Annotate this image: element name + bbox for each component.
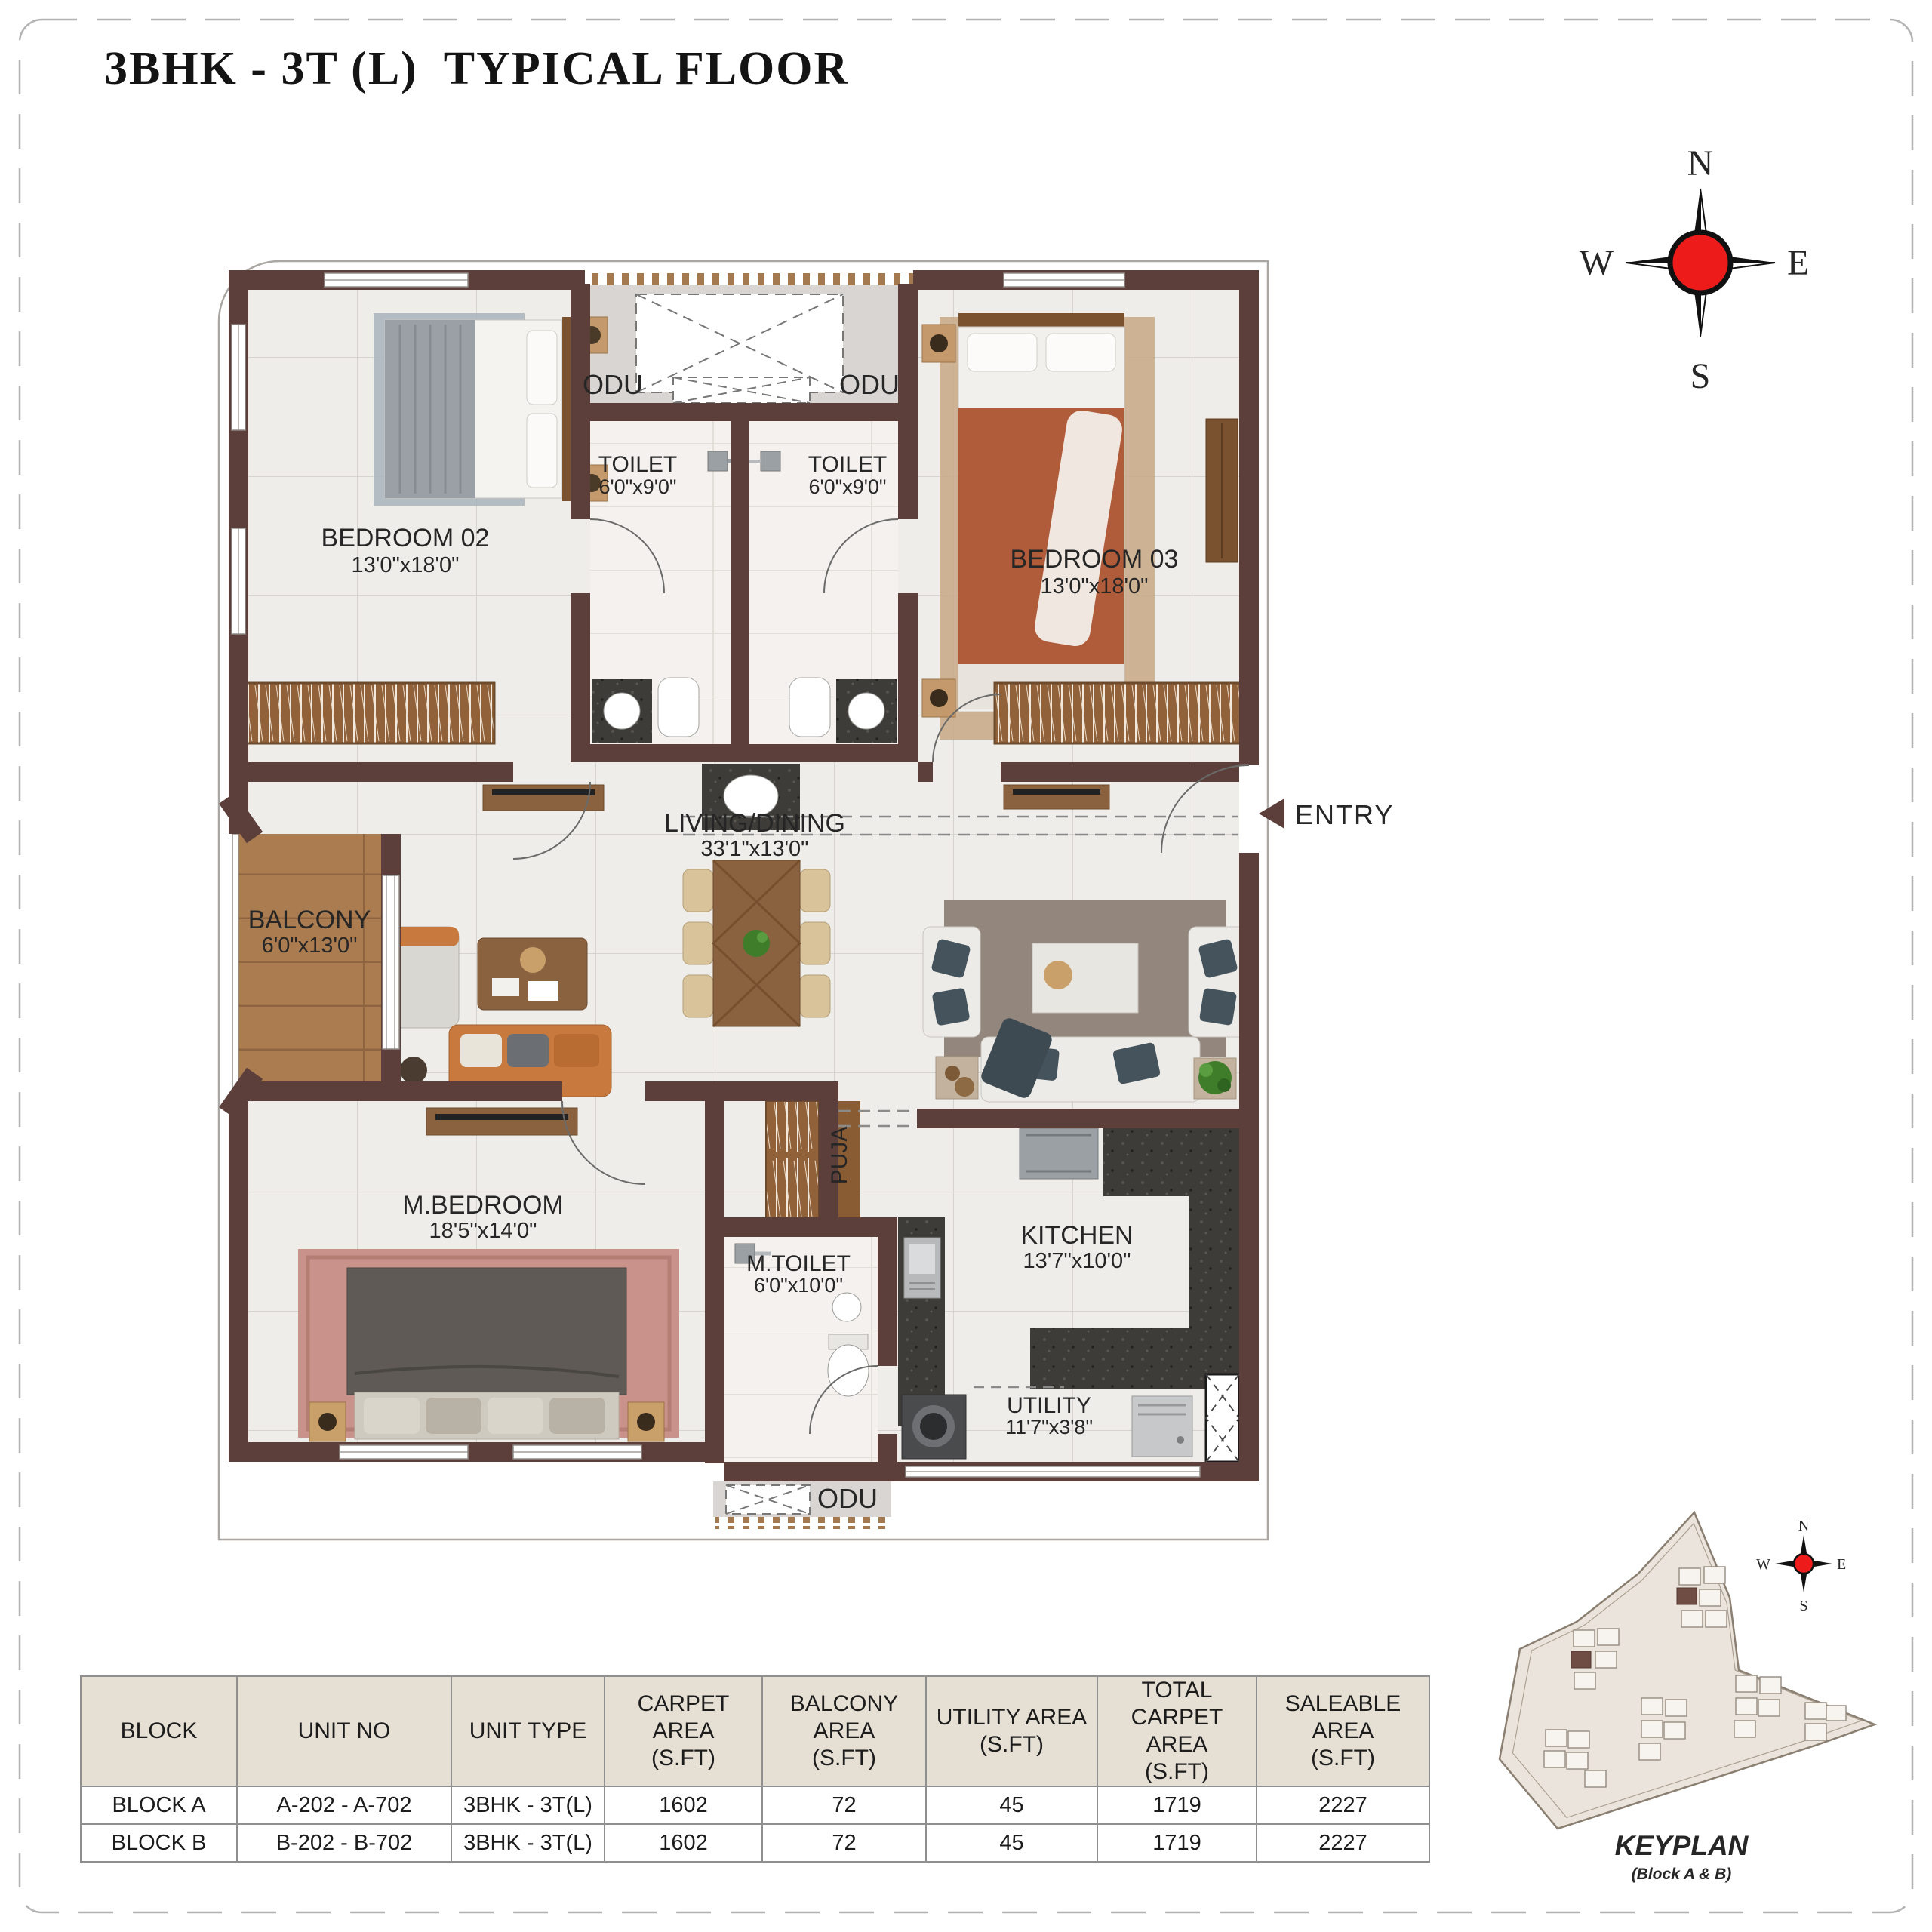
col-header-saleable-area: SALEABLE AREA (S.FT)	[1257, 1676, 1429, 1786]
odu-top-unit	[636, 294, 843, 403]
label-odu-right: ODU	[839, 369, 900, 400]
keyplan-compass-west: W	[1756, 1556, 1770, 1573]
entry-arrow-icon	[1259, 798, 1284, 829]
label-utility: UTILITY	[1007, 1393, 1091, 1418]
label-toilet2: TOILET	[598, 452, 677, 477]
keyplan-highlight-block-b	[1571, 1651, 1591, 1668]
corridor-wardrobe	[766, 1101, 819, 1217]
balcony-floor	[235, 834, 381, 1094]
label-toilet3: TOILET	[808, 452, 887, 477]
compass-west: W	[1580, 243, 1614, 283]
keyplan-site-boundary	[1500, 1512, 1875, 1829]
compass-north: N	[1687, 143, 1714, 183]
col-header-balcony-area: BALCONY AREA (S.FT)	[762, 1676, 926, 1786]
table-row-block-a: BLOCK A A-202 - A-702 3BHK - 3T(L) 1602 …	[81, 1786, 1429, 1824]
tv-console-2	[1004, 785, 1109, 809]
keyplan-compass-east: E	[1837, 1556, 1846, 1573]
label-bedroom02: BEDROOM 02	[321, 524, 490, 552]
label-balcony-dims: 6'0"x13'0"	[262, 934, 358, 958]
entry-marker: ENTRY	[1259, 798, 1394, 830]
cell-balcony-a: 72	[762, 1786, 926, 1824]
label-master-toilet-dims: 6'0"x10'0"	[754, 1274, 843, 1297]
col-header-utility-area: UTILITY AREA (S.FT)	[926, 1676, 1097, 1786]
label-bedroom03: BEDROOM 03	[1011, 545, 1179, 574]
cell-utility-a: 45	[926, 1786, 1097, 1824]
cell-carpet-a: 1602	[605, 1786, 762, 1824]
keyplan-highlight-block-a	[1677, 1588, 1697, 1604]
odu-bottom-unit	[726, 1485, 810, 1514]
label-master-bedroom-dims: 18'5"x14'0"	[429, 1219, 537, 1243]
label-entry: ENTRY	[1295, 799, 1394, 830]
table-row-block-b: BLOCK B B-202 - B-702 3BHK - 3T(L) 1602 …	[81, 1824, 1429, 1862]
wardrobe-bedroom03	[995, 683, 1241, 743]
cell-block-a: BLOCK A	[81, 1786, 237, 1824]
keyplan-compass-icon: N S E W	[1756, 1518, 1846, 1614]
cell-balcony-b: 72	[762, 1824, 926, 1862]
compass-south: S	[1690, 356, 1711, 396]
cell-unit-type-a: 3BHK - 3T(L)	[451, 1786, 605, 1824]
label-master-toilet: M.TOILET	[746, 1251, 851, 1276]
label-kitchen: KITCHEN	[1020, 1221, 1133, 1250]
compass-rose-icon: N S E W	[1580, 143, 1810, 396]
label-odu-bottom: ODU	[817, 1483, 878, 1514]
label-master-bedroom: M.BEDROOM	[402, 1191, 563, 1220]
col-header-carpet-area: CARPET AREA (S.FT)	[605, 1676, 762, 1786]
keyplan-title: KEYPLAN	[1615, 1830, 1749, 1861]
label-bedroom02-dims: 13'0"x18'0"	[352, 553, 460, 577]
compass-east: E	[1787, 243, 1809, 283]
label-kitchen-dims: 13'7"x10'0"	[1023, 1249, 1131, 1273]
keyplan-subtitle: (Block A & B)	[1632, 1866, 1732, 1883]
balcony-railing	[232, 834, 238, 1094]
label-toilet2-dims: 6'0"x9'0"	[598, 475, 676, 498]
cell-saleable-b: 2227	[1257, 1824, 1429, 1862]
cell-unit-no-a: A-202 - A-702	[237, 1786, 451, 1824]
cell-total-carpet-a: 1719	[1097, 1786, 1257, 1824]
floor-plan-page: 3BHK - 3T (L) TYPICAL FLOOR	[0, 0, 1932, 1932]
col-header-unit-type: UNIT TYPE	[451, 1676, 605, 1786]
col-header-block: BLOCK	[81, 1676, 237, 1786]
cell-saleable-a: 2227	[1257, 1786, 1429, 1824]
label-living: LIVING/DINING	[664, 809, 845, 838]
table-header-row: BLOCK UNIT NO UNIT TYPE CARPET AREA (S.F…	[81, 1676, 1429, 1786]
area-statement-table: BLOCK UNIT NO UNIT TYPE CARPET AREA (S.F…	[80, 1675, 1430, 1863]
label-bedroom03-dims: 13'0"x18'0"	[1041, 574, 1149, 598]
col-header-total-carpet-area: TOTAL CARPET AREA (S.FT)	[1097, 1676, 1257, 1786]
cell-utility-b: 45	[926, 1824, 1097, 1862]
label-utility-dims: 11'7"x3'8"	[1005, 1416, 1093, 1438]
label-living-dims: 33'1"x13'0"	[701, 837, 809, 861]
cell-block-b: BLOCK B	[81, 1824, 237, 1862]
col-header-unit-no: UNIT NO	[237, 1676, 451, 1786]
label-puja: PUJA	[827, 1127, 852, 1185]
cell-carpet-b: 1602	[605, 1824, 762, 1862]
floor-plan-canvas: BEDROOM 02 13'0"x18'0" BEDROOM 03 13'0"x…	[0, 0, 1932, 1932]
keyplan: KEYPLAN (Block A & B) N S E W	[1500, 1512, 1875, 1883]
cell-total-carpet-b: 1719	[1097, 1824, 1257, 1862]
label-balcony: BALCONY	[248, 906, 371, 934]
cell-unit-no-b: B-202 - B-702	[237, 1824, 451, 1862]
keyplan-compass-north: N	[1798, 1518, 1809, 1534]
keyplan-compass-south: S	[1799, 1598, 1807, 1614]
cell-unit-type-b: 3BHK - 3T(L)	[451, 1824, 605, 1862]
wardrobe-bedroom02	[245, 683, 494, 743]
dining-set	[683, 860, 830, 1026]
label-odu-left: ODU	[583, 369, 643, 400]
label-toilet3-dims: 6'0"x9'0"	[808, 475, 886, 498]
